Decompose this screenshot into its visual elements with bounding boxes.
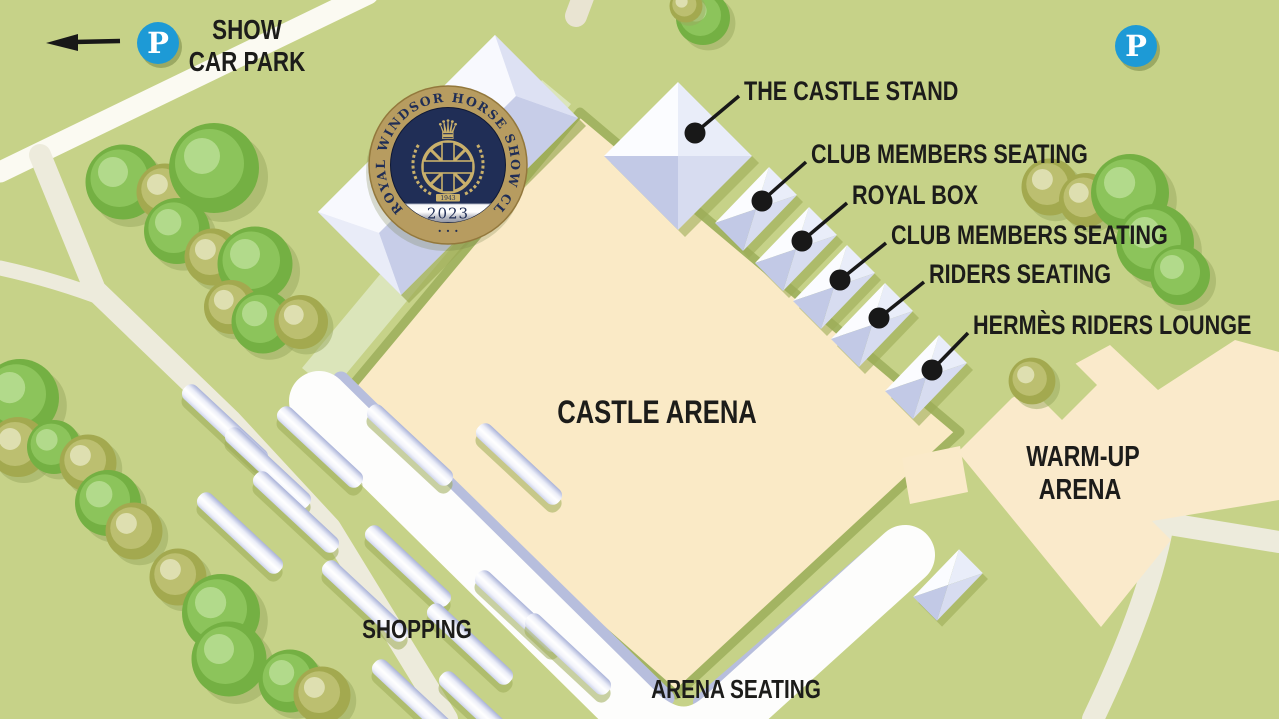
parking-icon-right: P [1115,25,1157,67]
callout-label-royal-box: ROYAL BOX [852,182,978,209]
show-car-park-label-line1: SHOW [212,16,282,44]
badge-dots: · · · [438,224,459,238]
callout-label-castle-stand: THE CASTLE STAND [744,78,958,105]
parking-icon-show-car-park: P [137,22,179,64]
callout-label-hermes-lounge: HERMÈS RIDERS LOUNGE [973,312,1251,339]
parking-letter: P [147,26,169,60]
warm-up-arena-label-line1: WARM-UP [1026,443,1139,472]
badge-founded: 1943 [440,195,455,202]
shopping-label: SHOPPING [362,616,472,642]
show-car-park-label-line2: CAR PARK [189,48,306,76]
arena-seating-label: ARENA SEATING [651,676,821,702]
warm-up-arena-label-line2: ARENA [1039,476,1122,505]
parking-letter: P [1125,29,1147,63]
map-graphics: ROYAL WINDSOR HORSE SHOW CLUB · · · ♛ 19… [0,0,1279,719]
venue-map: ROYAL WINDSOR HORSE SHOW CLUB · · · ♛ 19… [0,0,1279,719]
badge-year: 2023 [427,205,469,223]
callout-label-riders-seating: RIDERS SEATING [929,261,1111,288]
callout-label-club-members-2: CLUB MEMBERS SEATING [891,222,1168,249]
callout-label-club-members-1: CLUB MEMBERS SEATING [811,141,1088,168]
castle-arena-label: CASTLE ARENA [557,396,757,428]
